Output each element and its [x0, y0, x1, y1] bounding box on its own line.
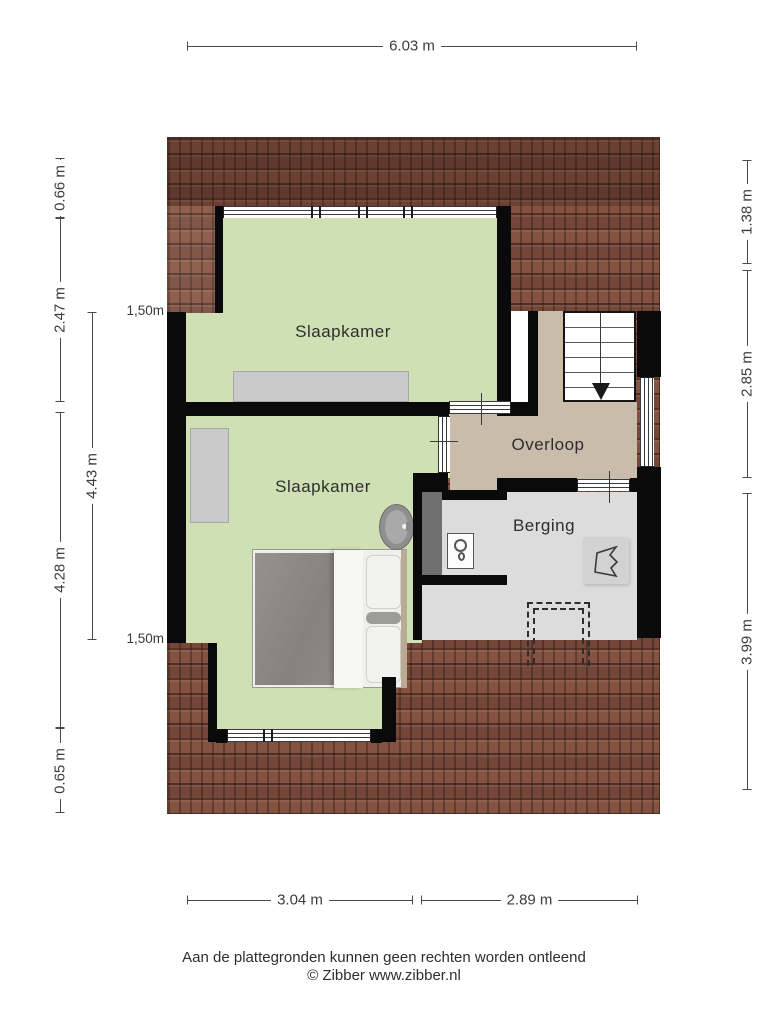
credit-text: © Zibber www.zibber.nl — [0, 967, 768, 985]
window-mullion — [311, 206, 313, 218]
dimension-left-3: 4.28 m — [54, 412, 66, 728]
dimension-left-4: 0.65 m — [54, 728, 66, 813]
window-mullion — [271, 729, 273, 742]
wall-segment — [167, 312, 186, 643]
dimension-label: 4.28 m — [52, 542, 69, 598]
stairs-direction-line — [600, 313, 601, 385]
wall-segment — [208, 643, 217, 742]
footer-disclaimer: Aan de plattegronden kunnen geen rechten… — [0, 949, 768, 985]
chair-icon — [583, 537, 629, 584]
wall-segment — [382, 677, 396, 742]
bed-sheet-fold — [334, 550, 363, 688]
dimension-label: 1.38 m — [739, 184, 756, 240]
clearance-label-top: 1,50m — [116, 303, 164, 318]
room-label-berging: Berging — [484, 516, 604, 536]
window-mullion — [411, 206, 413, 218]
room-label-overloop: Overloop — [488, 435, 608, 455]
wall-segment — [186, 402, 449, 416]
bed-pillow — [366, 626, 401, 683]
washing-machine-icon — [447, 533, 474, 569]
wall-segment — [637, 311, 661, 377]
wall-segment — [413, 478, 422, 640]
dimension-tick — [430, 441, 458, 442]
wall-segment — [528, 311, 538, 412]
floorplan-page: Slaapkamer Slaapkamer Overloop Berging 6… — [0, 0, 768, 1024]
side-window — [640, 377, 654, 467]
dimension-bottom-1: 3.04 m — [187, 893, 413, 907]
dimension-label: 6.03 m — [383, 38, 441, 55]
wall-segment — [497, 478, 577, 492]
dormer-window-band — [227, 729, 371, 742]
stairwell-void — [511, 311, 528, 402]
dimension-left-inner: 4.43 m — [86, 312, 98, 640]
stairs-down-arrow-icon — [592, 383, 610, 400]
stairs-down-icon — [563, 311, 636, 402]
window-mullion — [366, 206, 368, 218]
room-floor-overloop-landing — [537, 311, 563, 402]
dimension-right-2: 2.85 m — [741, 270, 753, 478]
dimension-label: 2.85 m — [739, 346, 756, 402]
dimension-right-3: 3.99 m — [741, 493, 753, 790]
dimension-tick — [609, 471, 610, 503]
bed-headboard — [401, 550, 407, 688]
dashed-floor-hatch-inner — [533, 608, 584, 664]
wall-segment — [216, 729, 227, 743]
wardrobe-icon — [190, 428, 229, 523]
dimension-left-2: 2.47 m — [54, 218, 66, 402]
washer-knob — [458, 552, 465, 561]
wall-segment — [422, 575, 507, 585]
disclaimer-text: Aan de plattegronden kunnen geen rechten… — [0, 949, 768, 967]
door-opening — [438, 416, 450, 473]
window-mullion — [403, 206, 405, 218]
room-label-slaapkamer-bottom: Slaapkamer — [233, 477, 413, 497]
bed-roll-cushion — [366, 612, 401, 624]
door-opening — [449, 401, 511, 414]
window-mullion — [358, 206, 360, 218]
dimension-label: 0.65 m — [52, 743, 69, 799]
roof-ridge-shade — [167, 137, 660, 206]
chimney-duct-icon — [422, 492, 442, 575]
dormer-window-band — [223, 206, 497, 218]
washer-door — [454, 539, 467, 552]
wall-segment — [497, 206, 511, 416]
dimension-bottom-2: 2.89 m — [421, 893, 638, 907]
clearance-label-bottom: 1,50m — [116, 631, 164, 646]
room-label-slaapkamer-top: Slaapkamer — [253, 322, 433, 342]
wall-segment — [371, 729, 382, 743]
dimension-label: 2.47 m — [52, 282, 69, 338]
door-opening — [577, 479, 630, 491]
bed-pillow — [366, 555, 401, 609]
wall-segment — [215, 206, 223, 313]
dimension-label: 3.04 m — [271, 892, 329, 909]
window-mullion — [263, 729, 265, 742]
wall-segment — [637, 467, 661, 638]
dimension-tick — [481, 393, 482, 425]
dimension-label: 2.89 m — [501, 892, 559, 909]
window-mullion — [319, 206, 321, 218]
room-floor-slaapkamer-top-ext — [186, 313, 223, 416]
dimension-label: 0.66 m — [52, 160, 69, 216]
wall-segment — [442, 490, 507, 500]
wardrobe-icon — [233, 371, 409, 402]
dimension-right-1: 1.38 m — [741, 160, 753, 264]
dimension-label: 3.99 m — [739, 614, 756, 670]
roof-slope-highlight — [167, 206, 215, 313]
dimension-label: 4.43 m — [84, 448, 101, 504]
chair-outline — [583, 537, 629, 584]
double-bed-icon — [252, 549, 407, 688]
dimension-top-width: 6.03 m — [187, 39, 637, 53]
dimension-left-1: 0.66 m — [54, 158, 66, 218]
